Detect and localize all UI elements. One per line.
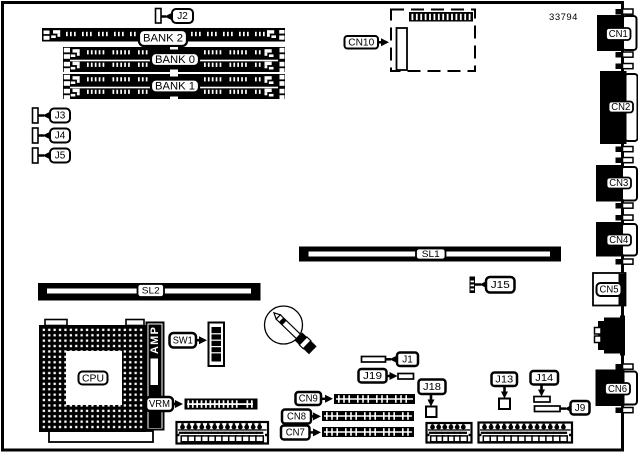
- svg-text:SL1: SL1: [422, 249, 440, 260]
- svg-text:BANK 0: BANK 0: [155, 54, 195, 66]
- svg-text:SL2: SL2: [142, 286, 160, 297]
- svg-text:J15: J15: [491, 280, 511, 291]
- svg-text:J18: J18: [423, 382, 441, 393]
- svg-text:CN3: CN3: [609, 178, 628, 189]
- svg-text:CN2: CN2: [611, 102, 630, 113]
- svg-text:VRM: VRM: [149, 399, 170, 410]
- svg-text:J14: J14: [535, 373, 553, 384]
- svg-text:J4: J4: [55, 131, 66, 142]
- svg-text:CN5: CN5: [600, 285, 619, 296]
- svg-text:J13: J13: [495, 374, 513, 385]
- svg-text:33794: 33794: [549, 12, 578, 23]
- svg-text:CPU: CPU: [82, 373, 104, 385]
- svg-text:CN1: CN1: [609, 29, 628, 40]
- svg-text:CN6: CN6: [608, 384, 627, 395]
- svg-text:BANK 2: BANK 2: [143, 33, 183, 45]
- svg-text:CN9: CN9: [299, 394, 318, 405]
- svg-text:CN4: CN4: [609, 235, 628, 246]
- svg-text:CN7: CN7: [286, 428, 305, 439]
- svg-text:J19: J19: [363, 371, 383, 382]
- svg-text:CN10: CN10: [348, 37, 374, 48]
- svg-text:SW1: SW1: [173, 335, 193, 346]
- svg-text:J5: J5: [55, 151, 66, 162]
- svg-text:CN8: CN8: [287, 412, 306, 423]
- svg-text:J9: J9: [575, 403, 586, 414]
- svg-text:BANK 1: BANK 1: [155, 81, 195, 93]
- svg-text:AMP: AMP: [149, 326, 161, 354]
- svg-text:J3: J3: [55, 111, 66, 122]
- svg-text:J2: J2: [177, 11, 188, 22]
- svg-text:J1: J1: [402, 354, 413, 365]
